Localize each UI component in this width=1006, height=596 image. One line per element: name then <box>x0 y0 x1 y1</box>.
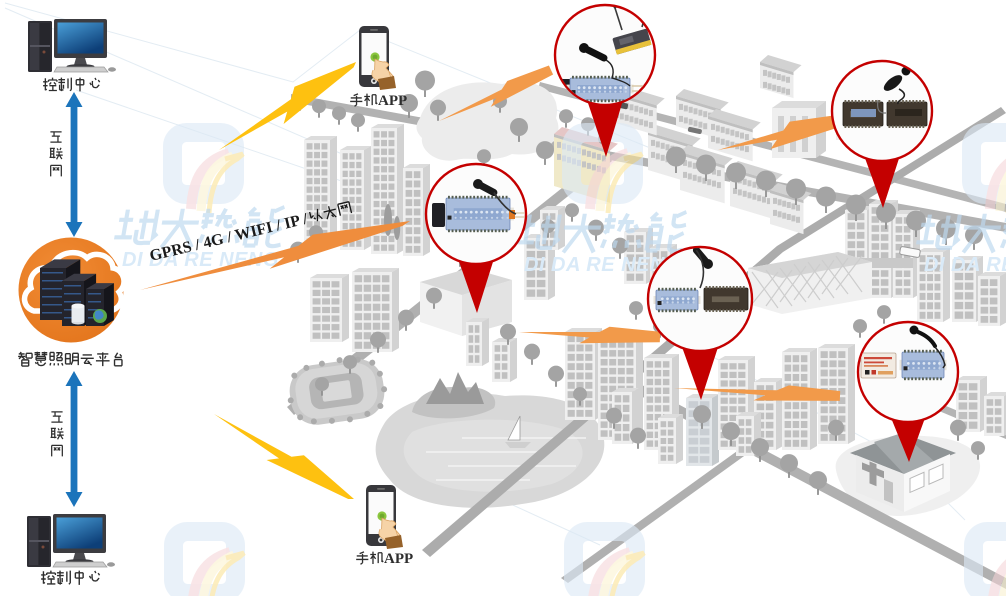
svg-text:APP: APP <box>378 93 407 109</box>
svg-text:DI DA RE NENG: DI DA RE NENG <box>924 254 1006 276</box>
svg-text:APP: APP <box>384 551 413 567</box>
